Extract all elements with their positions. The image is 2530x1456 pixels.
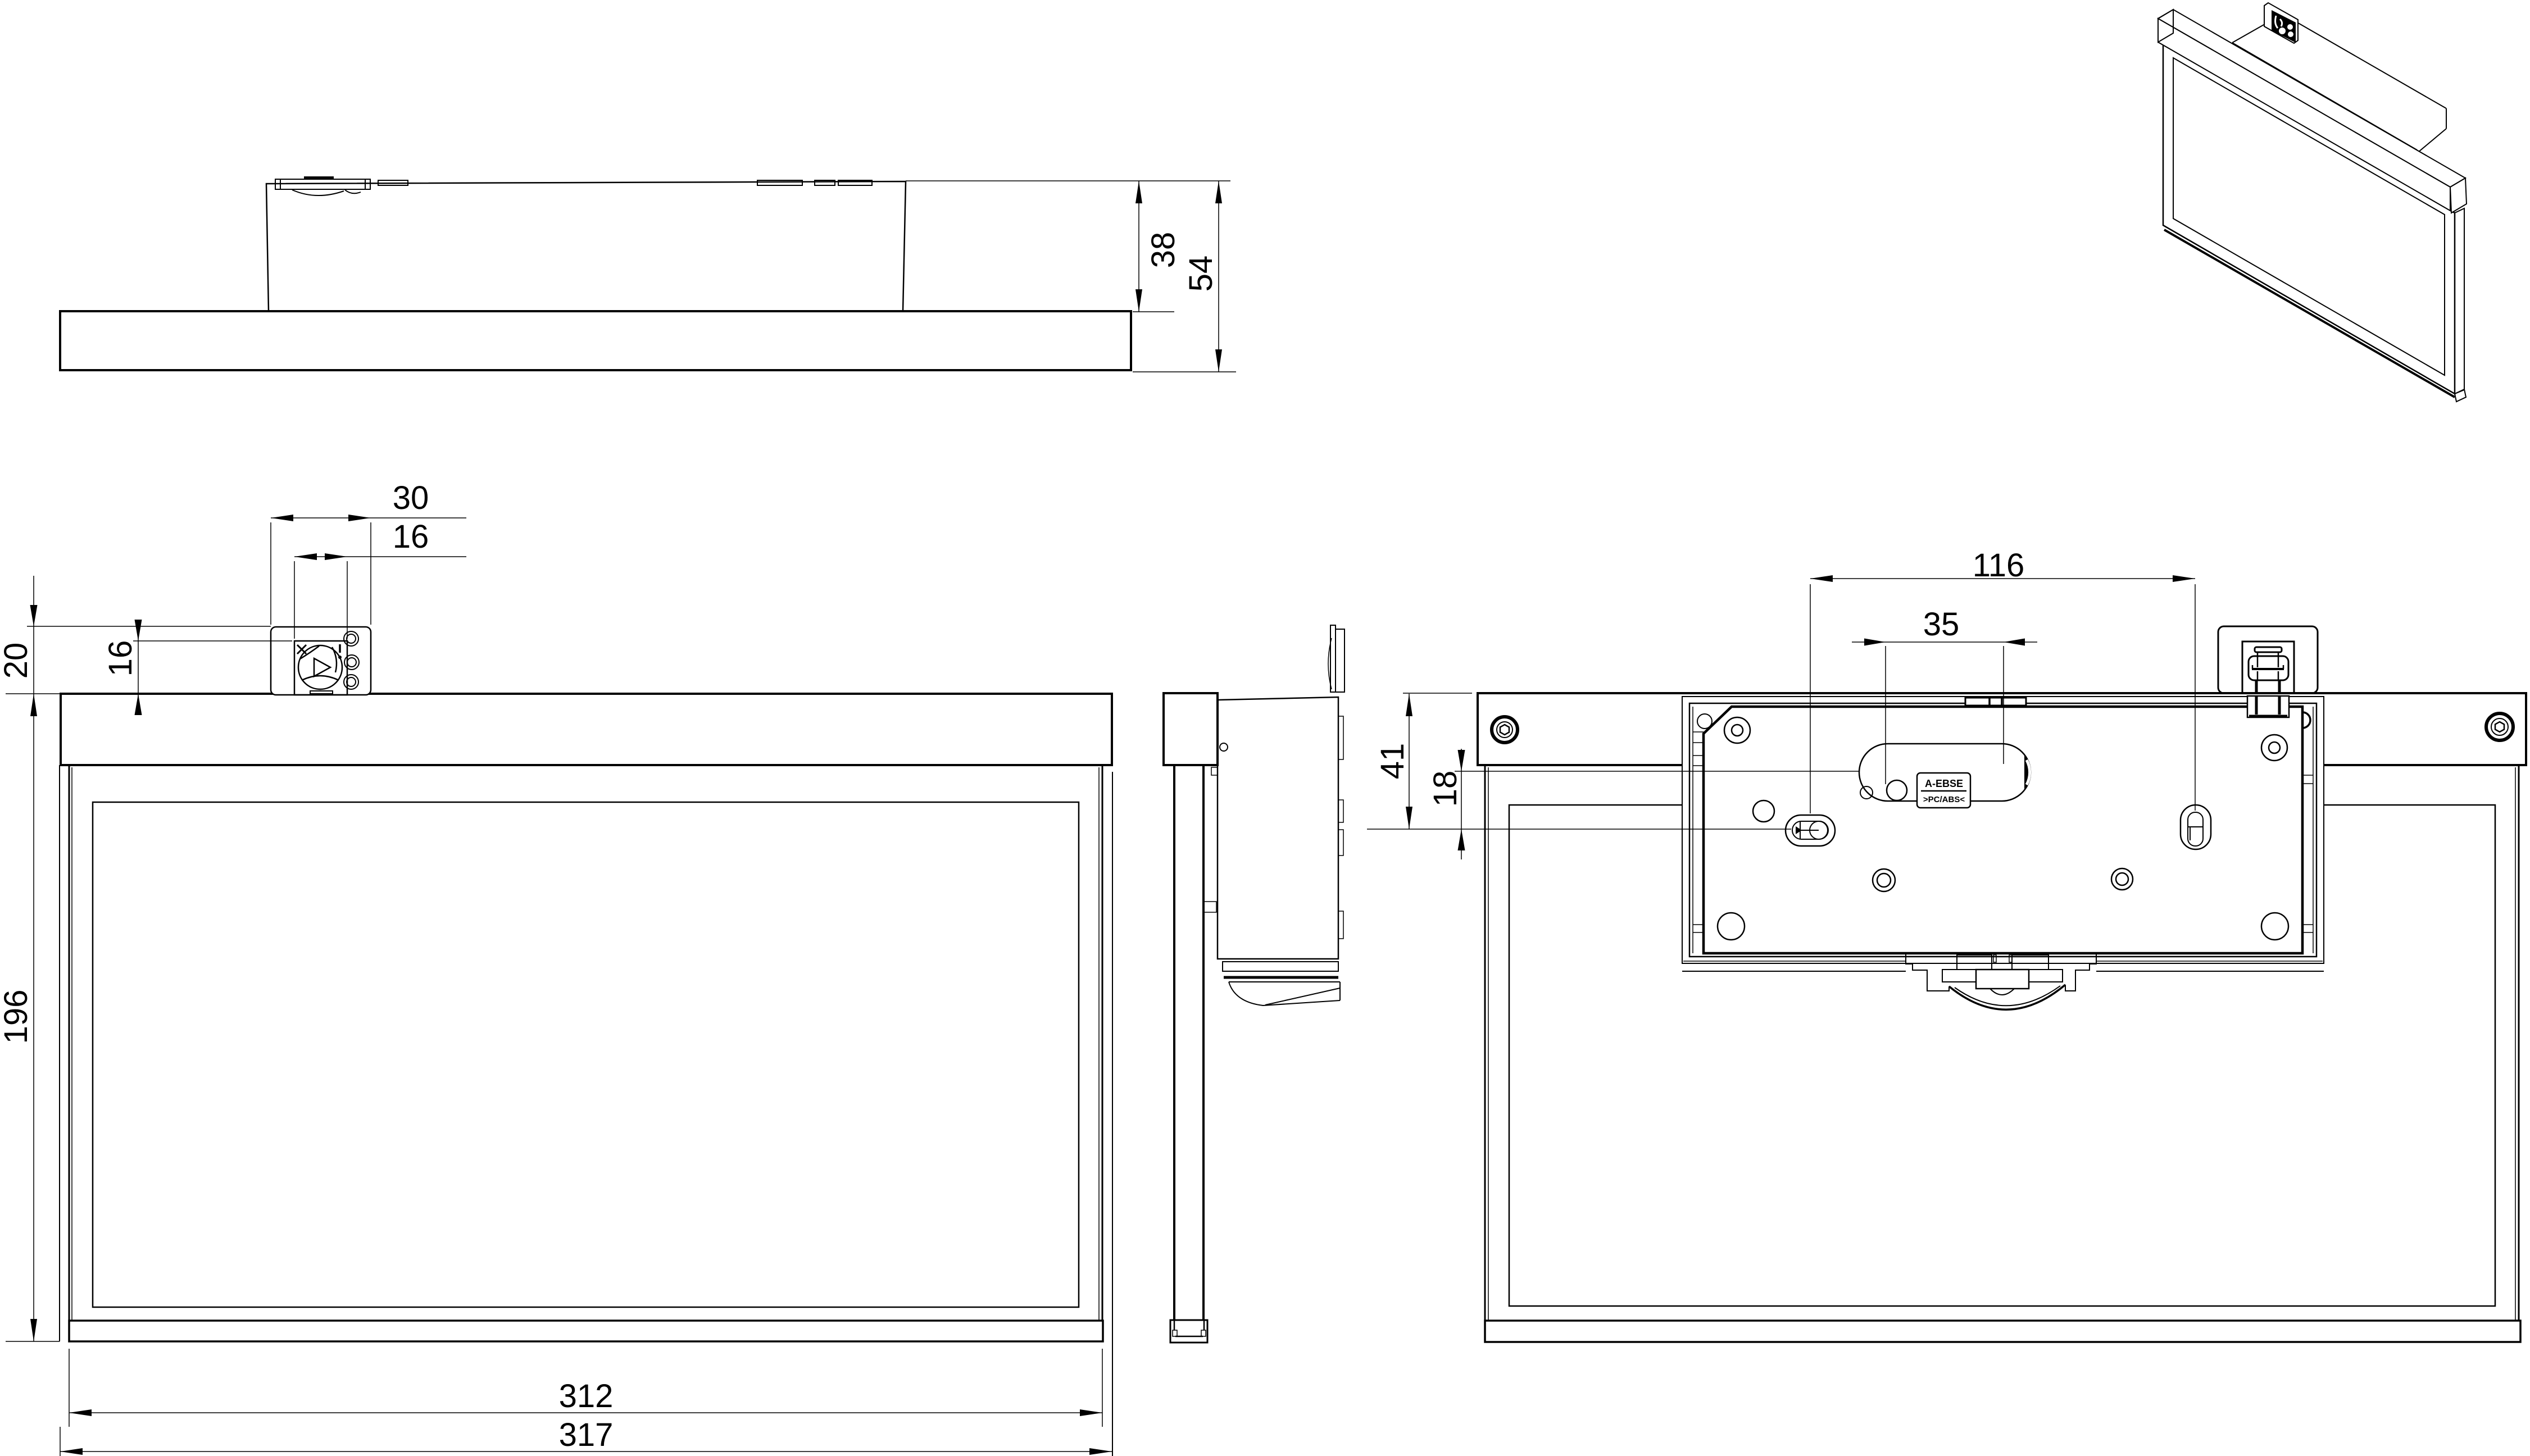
svg-text:54: 54 (1183, 256, 1219, 292)
svg-text:35: 35 (1923, 606, 1960, 643)
svg-text:20: 20 (0, 643, 34, 679)
svg-text:18: 18 (1427, 771, 1464, 807)
svg-text:41: 41 (1374, 743, 1411, 780)
svg-text:196: 196 (0, 990, 34, 1044)
svg-text:38: 38 (1145, 232, 1182, 269)
svg-text:>PC/ABS<: >PC/ABS< (1923, 795, 1965, 804)
svg-text:116: 116 (1973, 547, 2024, 584)
svg-text:30: 30 (393, 480, 429, 516)
svg-text:16: 16 (102, 640, 139, 677)
svg-text:312: 312 (559, 1378, 614, 1414)
svg-text:A-EBSE: A-EBSE (1925, 778, 1963, 789)
svg-text:16: 16 (393, 518, 429, 555)
svg-text:317: 317 (559, 1417, 614, 1453)
